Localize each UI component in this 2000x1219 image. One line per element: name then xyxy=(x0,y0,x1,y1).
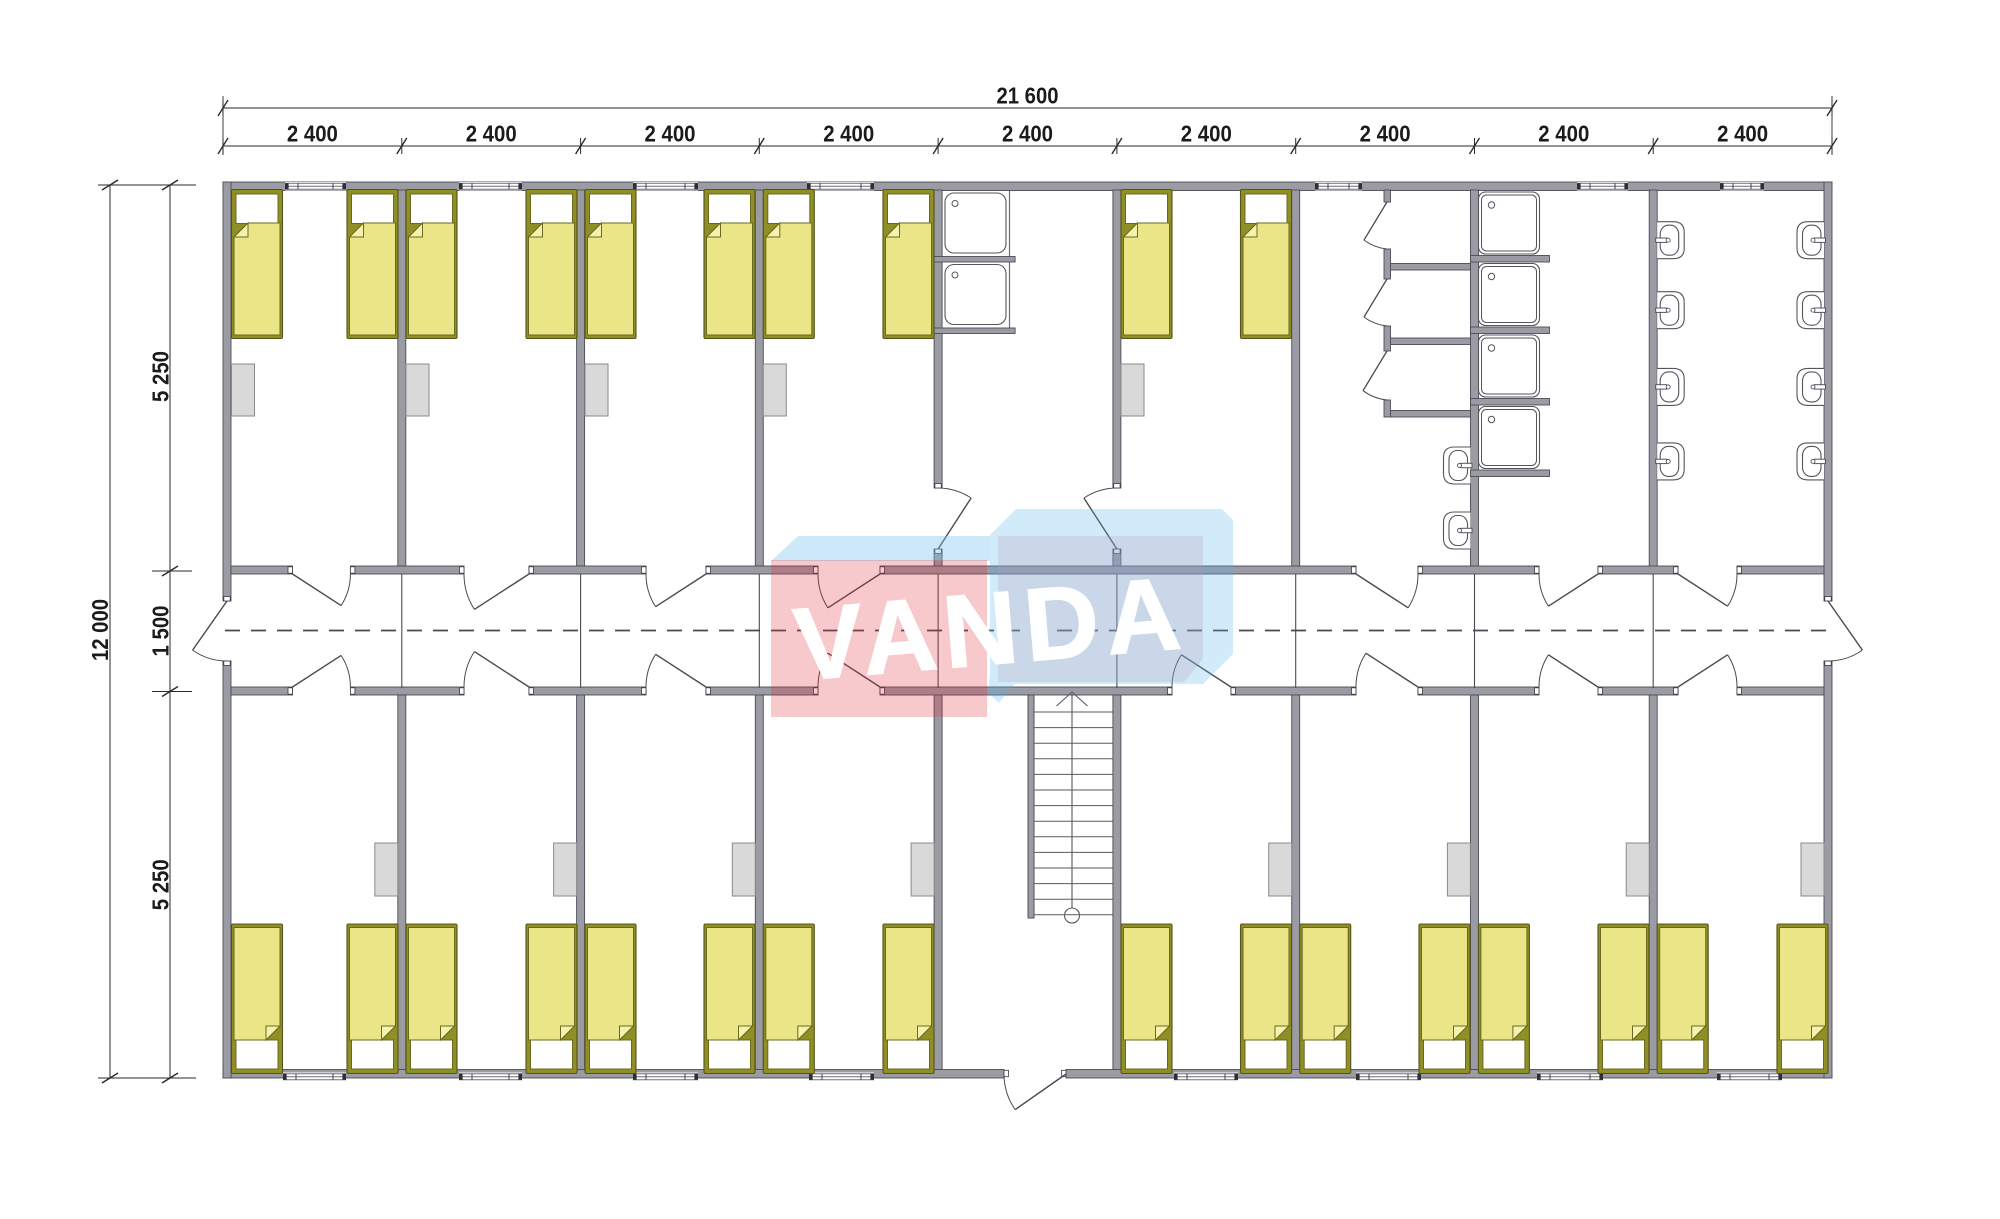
svg-text:2 400: 2 400 xyxy=(1538,121,1589,147)
svg-text:2 400: 2 400 xyxy=(1360,121,1411,147)
svg-text:2 400: 2 400 xyxy=(645,121,696,147)
svg-text:2 400: 2 400 xyxy=(1181,121,1232,147)
svg-text:12 000: 12 000 xyxy=(87,599,113,661)
svg-text:21 600: 21 600 xyxy=(997,83,1059,109)
svg-text:2 400: 2 400 xyxy=(1002,121,1053,147)
svg-text:2 400: 2 400 xyxy=(287,121,338,147)
svg-text:2 400: 2 400 xyxy=(466,121,517,147)
svg-text:1 500: 1 500 xyxy=(148,606,174,657)
svg-text:5 250: 5 250 xyxy=(148,859,174,910)
svg-text:2 400: 2 400 xyxy=(1717,121,1768,147)
svg-text:5 250: 5 250 xyxy=(148,351,174,402)
svg-text:2 400: 2 400 xyxy=(823,121,874,147)
